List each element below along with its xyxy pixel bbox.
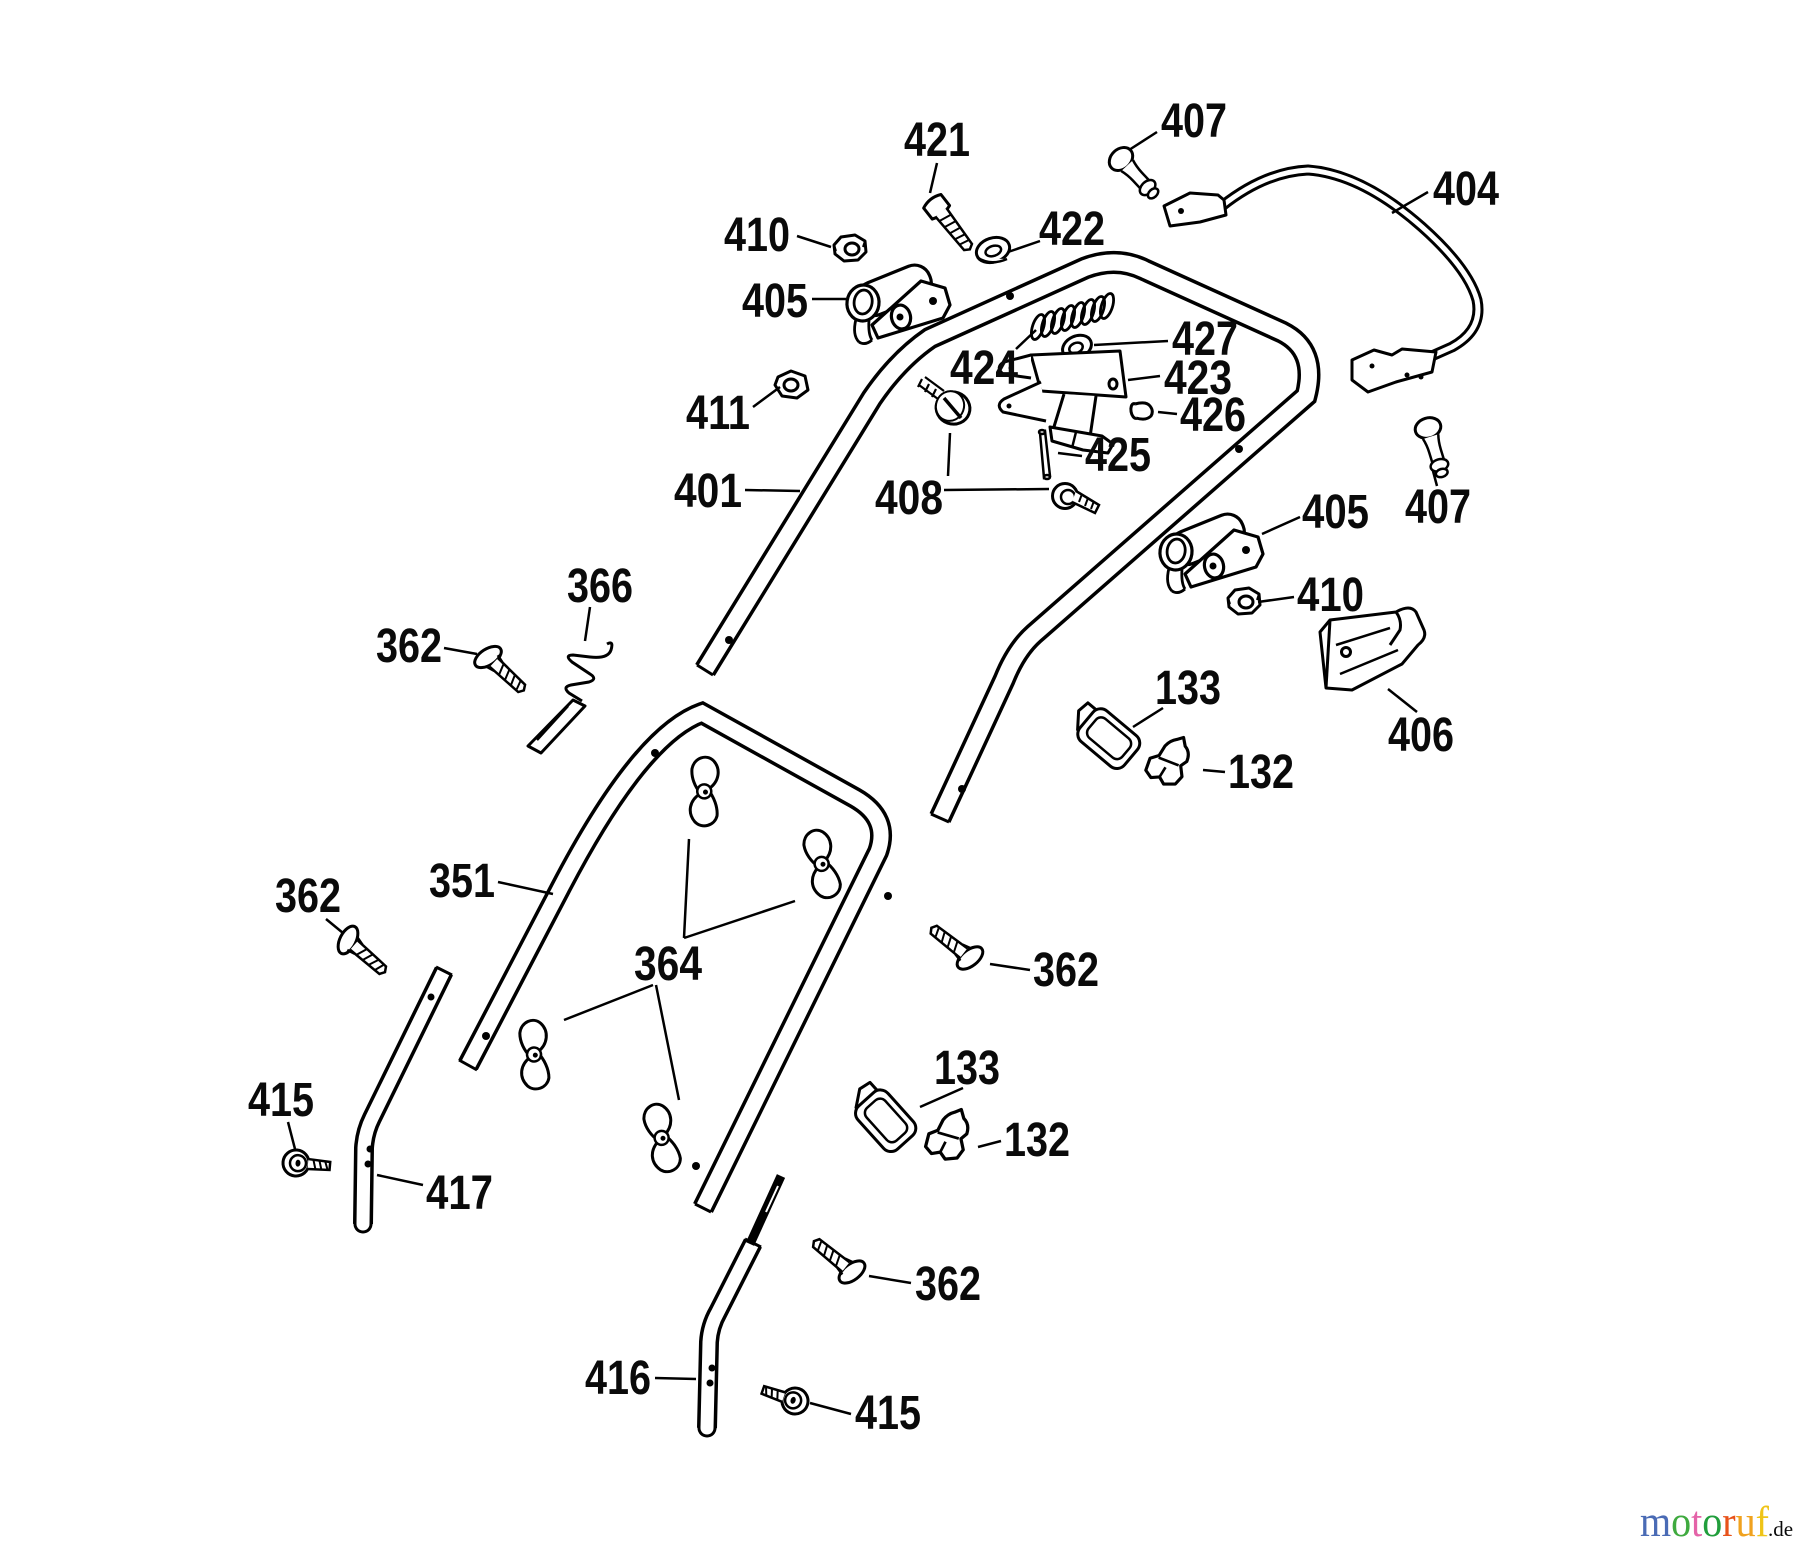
svg-text:411: 411: [686, 387, 750, 440]
svg-text:424: 424: [950, 342, 1018, 395]
svg-text:415: 415: [248, 1074, 314, 1127]
svg-text:362: 362: [1033, 944, 1099, 997]
svg-text:362: 362: [376, 620, 442, 673]
svg-text:motoruf: motoruf: [1640, 1499, 1770, 1546]
svg-text:405: 405: [742, 275, 808, 328]
svg-text:405: 405: [1302, 486, 1369, 539]
svg-text:416: 416: [585, 1352, 651, 1405]
svg-text:133: 133: [1155, 662, 1221, 715]
svg-text:132: 132: [1228, 746, 1294, 799]
svg-text:133: 133: [934, 1042, 1000, 1095]
svg-text:408: 408: [875, 472, 943, 525]
svg-text:421: 421: [904, 114, 970, 167]
svg-text:407: 407: [1405, 481, 1471, 534]
svg-text:364: 364: [634, 938, 702, 991]
svg-text:410: 410: [724, 209, 790, 262]
svg-text:425: 425: [1085, 429, 1151, 482]
svg-text:132: 132: [1004, 1114, 1070, 1167]
svg-text:426: 426: [1180, 389, 1246, 442]
svg-text:404: 404: [1433, 163, 1499, 216]
svg-text:406: 406: [1388, 709, 1454, 762]
svg-text:415: 415: [855, 1387, 921, 1440]
svg-text:366: 366: [567, 560, 633, 613]
svg-text:362: 362: [275, 870, 341, 923]
svg-text:417: 417: [426, 1167, 493, 1220]
svg-text:422: 422: [1039, 203, 1105, 256]
svg-text:407: 407: [1161, 95, 1227, 148]
svg-text:351: 351: [429, 855, 495, 908]
svg-text:362: 362: [915, 1258, 981, 1311]
svg-text:401: 401: [674, 465, 742, 518]
svg-text:.de: .de: [1768, 1517, 1793, 1541]
svg-text:410: 410: [1297, 569, 1364, 622]
